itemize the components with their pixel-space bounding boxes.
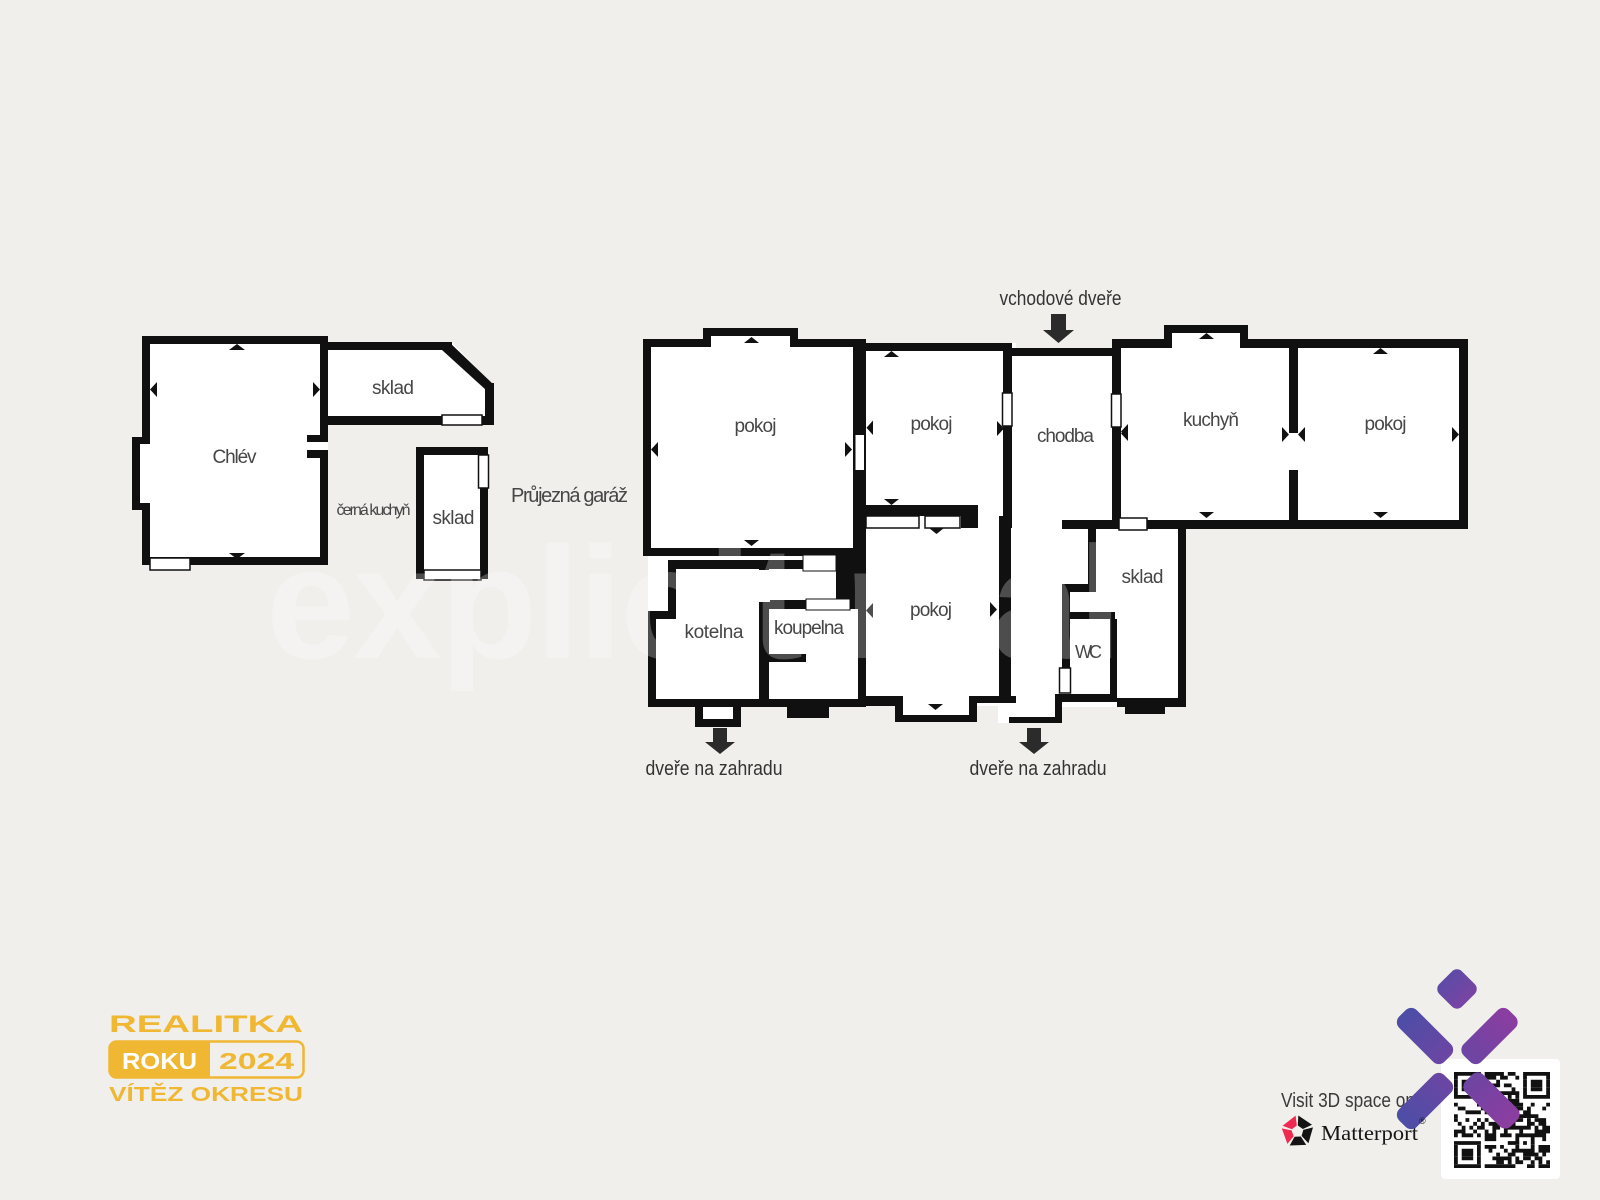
svg-text:pokoj: pokoj	[1365, 414, 1407, 435]
svg-text:explicit reality: explicit reality	[266, 513, 1303, 692]
svg-text:koupelna: koupelna	[774, 618, 844, 639]
svg-text:2024: 2024	[219, 1048, 294, 1074]
svg-text:sklad: sklad	[1122, 567, 1164, 588]
svg-text:Chlév: Chlév	[213, 447, 258, 468]
svg-text:sklad: sklad	[372, 378, 414, 399]
svg-text:dveře na zahradu: dveře na zahradu	[970, 758, 1107, 780]
svg-text:®: ®	[1419, 1116, 1426, 1126]
svg-text:pokoj: pokoj	[911, 414, 953, 435]
svg-text:Matterport: Matterport	[1321, 1121, 1418, 1145]
svg-text:kotelna: kotelna	[685, 622, 744, 643]
svg-text:Visit 3D space on: Visit 3D space on	[1281, 1090, 1415, 1112]
svg-text:ROKU: ROKU	[122, 1048, 197, 1074]
svg-text:černá kuchyň: černá kuchyň	[337, 502, 411, 519]
svg-text:dveře na zahradu: dveře na zahradu	[646, 758, 783, 780]
svg-text:pokoj: pokoj	[735, 416, 777, 437]
svg-text:VÍTĚZ OKRESU: VÍTĚZ OKRESU	[109, 1082, 303, 1106]
svg-text:WC: WC	[1075, 642, 1102, 662]
svg-text:pokoj: pokoj	[910, 600, 952, 621]
svg-text:sklad: sklad	[433, 508, 475, 529]
svg-text:chodba: chodba	[1037, 426, 1094, 447]
svg-text:kuchyň: kuchyň	[1183, 410, 1239, 431]
svg-text:Průjezná garáž: Průjezná garáž	[511, 485, 628, 507]
svg-text:REALITKA: REALITKA	[109, 1011, 303, 1038]
svg-text:vchodové dveře: vchodové dveře	[1000, 288, 1122, 310]
